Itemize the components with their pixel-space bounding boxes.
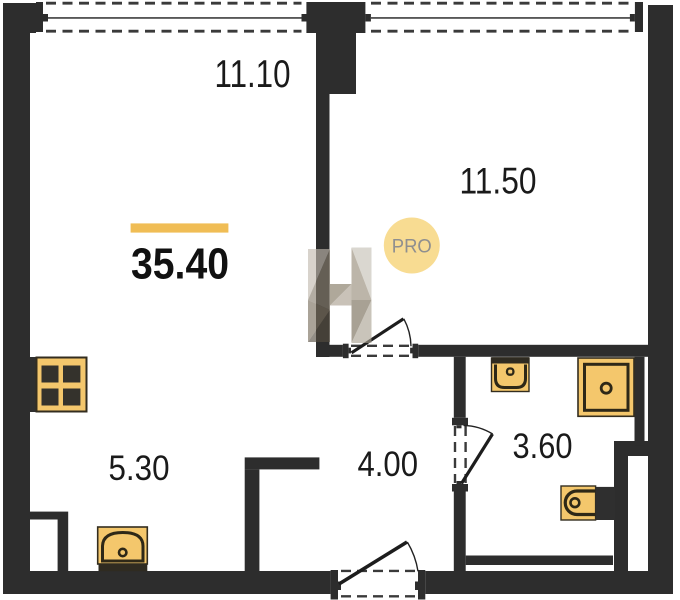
svg-text:3.60: 3.60 — [513, 427, 573, 466]
svg-text:11.10: 11.10 — [215, 53, 291, 96]
svg-text:5.30: 5.30 — [109, 449, 170, 488]
svg-text:4.00: 4.00 — [358, 445, 419, 484]
svg-text:11.50: 11.50 — [460, 160, 537, 202]
svg-text:PRO: PRO — [392, 236, 432, 258]
svg-text:35.40: 35.40 — [131, 240, 229, 289]
